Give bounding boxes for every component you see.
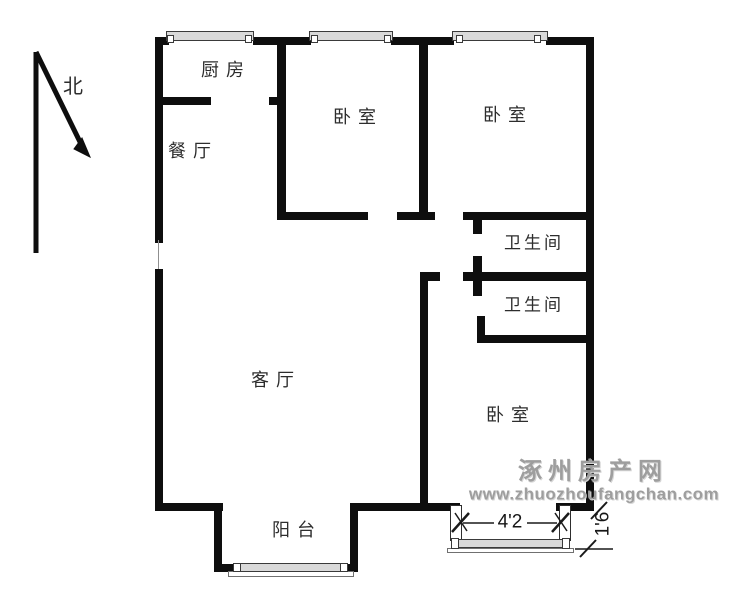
annotation-overlay — [0, 0, 745, 600]
room-label-dining: 餐厅 — [168, 143, 218, 161]
dim-label-bay-width: 4'2 — [498, 513, 523, 532]
room-label-balcony: 阳台 — [272, 522, 322, 540]
room-label-bedroom-bottom-right: 卧室 — [486, 407, 536, 425]
room-label-bath-lower: 卫生间 — [504, 298, 564, 315]
floor-plan: 北 厨房 餐厅 卧室 卧室 卫生间 卫生间 客厅 卧室 阳台 4'2 1'6 涿… — [0, 0, 745, 600]
room-label-bedroom-top-right: 卧室 — [483, 107, 533, 125]
north-label: 北 — [63, 76, 83, 96]
watermark-site-name: 涿州房产网 — [518, 460, 668, 484]
room-label-bedroom-top-left: 卧室 — [333, 109, 383, 127]
room-label-living: 客厅 — [251, 372, 301, 390]
dim-label-bay-depth: 1'6 — [594, 512, 613, 537]
room-label-bath-upper: 卫生间 — [504, 236, 564, 253]
watermark-site-url: www.zhuozhoufangchan.com — [469, 486, 719, 503]
room-label-kitchen: 厨房 — [201, 62, 251, 80]
